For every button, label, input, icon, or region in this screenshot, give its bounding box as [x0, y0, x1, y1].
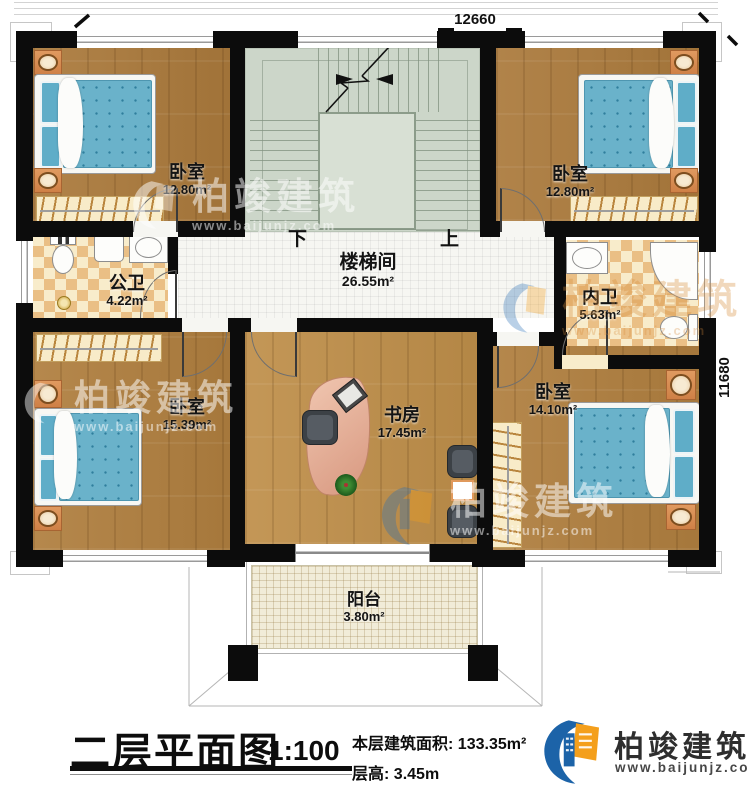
bed — [578, 74, 700, 174]
chimney-stub — [506, 28, 522, 38]
toilet-bowl — [660, 316, 688, 339]
window — [77, 31, 213, 48]
window — [525, 550, 668, 567]
floor-drain — [57, 296, 71, 310]
nightstand — [666, 370, 696, 400]
wall — [16, 221, 245, 237]
bed — [34, 74, 156, 174]
window — [525, 31, 663, 48]
sink-basin — [572, 247, 602, 269]
wardrobe — [36, 334, 162, 362]
stair-down-label: 下 — [288, 224, 307, 251]
nightstand — [34, 380, 62, 408]
door-opening — [562, 355, 608, 369]
floor-area-value: 133.35m² — [458, 736, 527, 753]
nightstand — [34, 168, 62, 193]
stair-up-label: 上 — [440, 224, 459, 251]
floor-height-label: 层高: — [352, 766, 389, 783]
chimney-stub — [438, 28, 454, 38]
room-label-bedroom-bl: 卧室15.39m² — [139, 398, 235, 432]
floor-height-line: 层高: 3.45m — [352, 760, 439, 784]
dimension-right: 11680 — [716, 330, 736, 425]
room-label-bedroom-tl: 卧室12.80m² — [139, 163, 235, 197]
toilet-bowl — [52, 245, 74, 274]
window — [16, 241, 33, 303]
washing-machine — [94, 233, 124, 262]
nightstand — [670, 168, 698, 193]
sink-basin — [135, 237, 162, 258]
floor-area-line: 本层建筑面积: 133.35m² — [352, 730, 526, 754]
wall — [168, 232, 178, 274]
porch-column — [228, 645, 258, 681]
wall — [230, 31, 245, 232]
room-label-public-bath: 公卫4.22m² — [79, 274, 175, 308]
side-table — [451, 480, 474, 501]
bed — [34, 408, 142, 506]
brand-logo-icon — [540, 716, 612, 788]
nightstand — [666, 504, 696, 530]
wall — [477, 318, 493, 554]
room-label-study: 书房17.45m² — [354, 406, 450, 440]
window — [298, 31, 437, 48]
wall — [230, 318, 245, 554]
plan-scale: 1:100 — [268, 735, 340, 767]
room-label-stair-hall: 楼梯间26.55m² — [320, 253, 416, 289]
toilet-tank — [688, 314, 698, 341]
door-opening — [251, 318, 297, 332]
brand-website[interactable]: www.baijunjz.com — [615, 760, 750, 775]
wardrobe — [570, 196, 698, 224]
roof-eaves-band — [14, 2, 718, 18]
stair-stringer-outline — [262, 60, 468, 230]
door-opening — [182, 318, 228, 332]
nightstand — [670, 50, 698, 75]
door-opening — [497, 332, 539, 346]
armchair — [447, 445, 478, 478]
room-label-bedroom-br: 卧室14.10m² — [505, 383, 601, 417]
desk-chair — [302, 410, 338, 445]
room-label-balcony: 阳台3.80m² — [316, 591, 412, 624]
room-label-ensuite-bath: 内卫5.63m² — [552, 288, 648, 322]
window — [63, 550, 207, 567]
wardrobe — [492, 422, 522, 548]
floor-height-value: 3.45m — [394, 766, 439, 783]
potted-plant — [335, 474, 357, 496]
title-underline-thin — [70, 774, 352, 775]
room-label-bedroom-tr: 卧室12.80m² — [522, 165, 618, 199]
window — [699, 252, 716, 318]
bed — [568, 402, 700, 504]
balcony-sliding-door — [295, 544, 430, 562]
nightstand — [34, 50, 62, 75]
nightstand — [34, 506, 62, 531]
floor-area-label: 本层建筑面积: — [352, 736, 453, 753]
armchair — [447, 505, 478, 538]
wall — [480, 31, 496, 232]
dimension-top: 12660 — [420, 11, 530, 28]
floor-plan-page: 卧室12.80m² 卧室12.80m² 公卫4.22m² 楼梯间26.55m² … — [0, 0, 750, 794]
porch-column — [468, 645, 498, 681]
